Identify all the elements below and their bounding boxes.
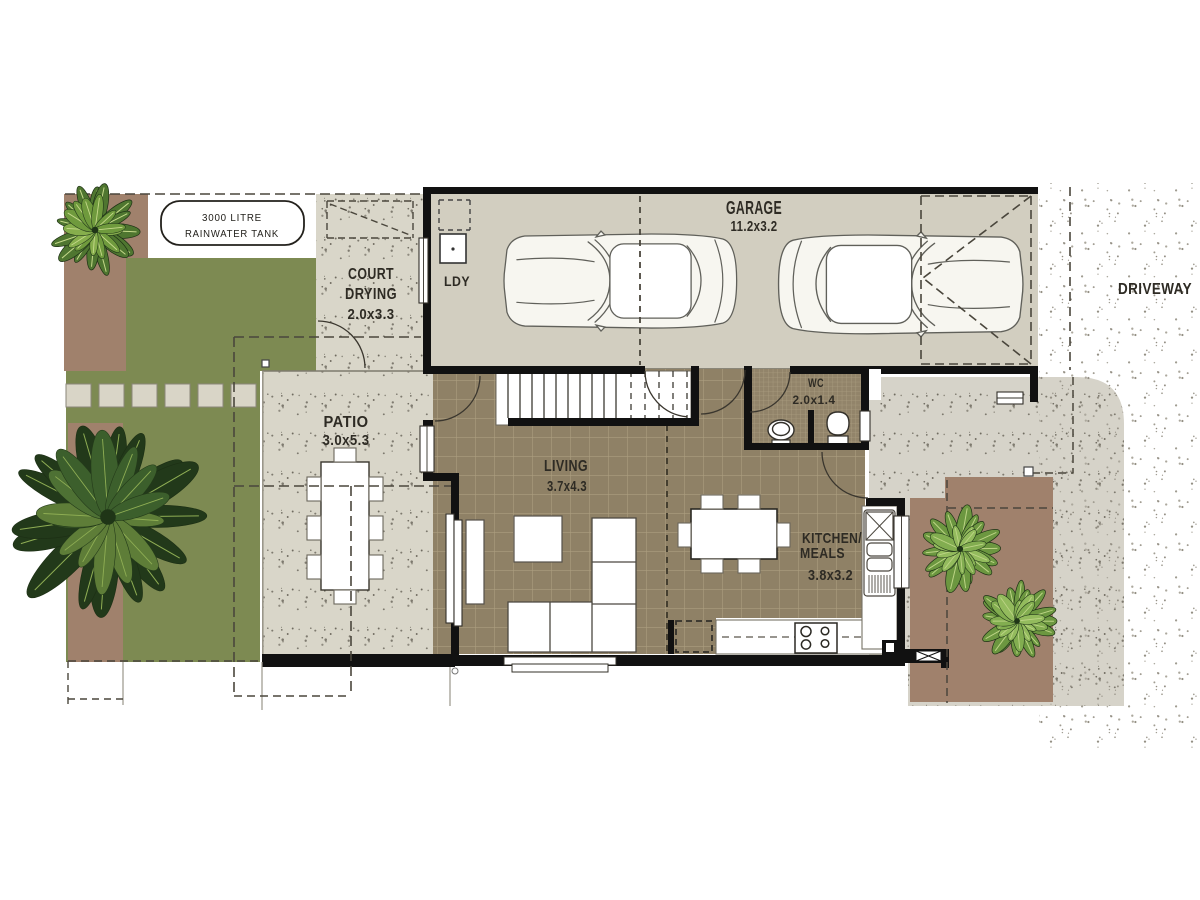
svg-text:11.2x3.2: 11.2x3.2 xyxy=(731,218,778,235)
svg-text:COURT: COURT xyxy=(348,266,394,283)
svg-text:DRIVEWAY: DRIVEWAY xyxy=(1118,281,1192,298)
svg-text:3.7x4.3: 3.7x4.3 xyxy=(547,478,587,495)
svg-text:3000 LITRE: 3000 LITRE xyxy=(202,213,262,224)
svg-text:WC: WC xyxy=(808,376,824,390)
svg-text:PATIO: PATIO xyxy=(324,414,369,431)
svg-text:2.0x1.4: 2.0x1.4 xyxy=(793,393,836,407)
svg-text:GARAGE: GARAGE xyxy=(726,198,782,218)
svg-text:RAINWATER TANK: RAINWATER TANK xyxy=(185,229,279,240)
svg-text:LIVING: LIVING xyxy=(544,458,588,475)
svg-text:LDY: LDY xyxy=(444,273,470,289)
svg-text:2.0x3.3: 2.0x3.3 xyxy=(348,306,395,323)
svg-text:MEALS: MEALS xyxy=(800,545,845,562)
svg-text:3.0x5.3: 3.0x5.3 xyxy=(323,432,370,449)
svg-text:3.8x3.2: 3.8x3.2 xyxy=(808,567,853,584)
svg-text:DRYING: DRYING xyxy=(345,286,397,303)
